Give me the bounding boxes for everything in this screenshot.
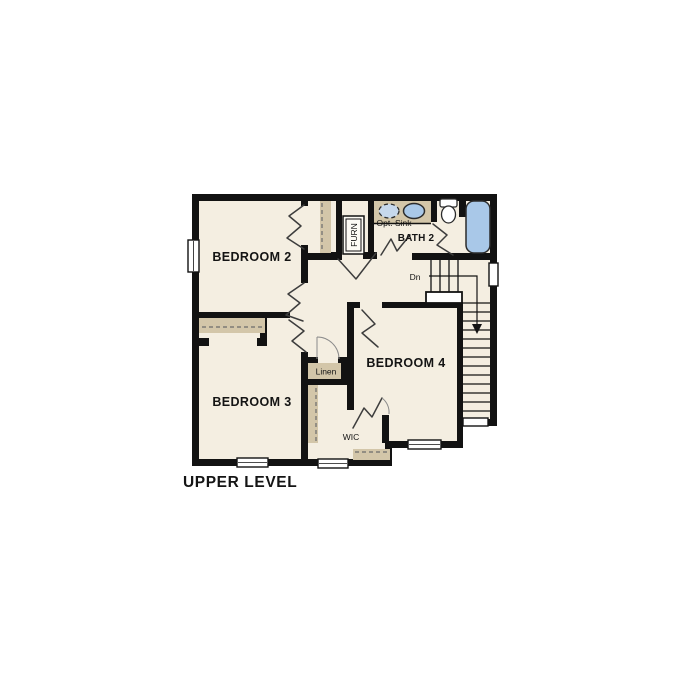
wic-label: WIC (343, 432, 360, 442)
wall-exterior-bottom (192, 459, 392, 466)
bathtub (466, 201, 490, 253)
stairs-down-label: Dn (410, 272, 421, 282)
window-stair-right (489, 263, 498, 286)
wall-bedroom4-left (347, 302, 354, 410)
wall-wic-bedroom4-stub (382, 415, 389, 443)
wall-exterior-left (192, 194, 199, 466)
wall-bath-bottom (412, 253, 497, 260)
wall-bedroom4-right (457, 302, 463, 448)
wall-closet2-bottom (301, 253, 342, 260)
wall-furn-right (368, 194, 374, 253)
wall-closet3-jamb-right (257, 338, 267, 346)
bedroom3-label: BEDROOM 3 (212, 395, 291, 409)
bedroom4-label: BEDROOM 4 (366, 356, 445, 370)
window-stair-bottom (463, 418, 488, 426)
plan-title: UPPER LEVEL (183, 474, 297, 491)
wall-linen-wic-divider (301, 379, 347, 385)
wall-linen-jamb-left (301, 357, 318, 363)
floor-plan-page: BEDROOM 2 BEDROOM 3 BEDROOM 4 BATH 2 Opt… (0, 0, 687, 687)
sink-optional (379, 204, 399, 218)
wall-closet2-furn-divider (336, 194, 342, 260)
wall-bedroom3-right (301, 352, 308, 466)
wall-bedroom2-bottom (192, 312, 290, 318)
floor-plan-drawing: BEDROOM 2 BEDROOM 3 BEDROOM 4 BATH 2 Opt… (0, 0, 687, 687)
wall-closet3-jamb-left (199, 338, 209, 346)
wall-exterior-right (490, 194, 497, 426)
closet-bedroom3-shelf (199, 318, 265, 333)
toilet-bowl (442, 206, 456, 223)
wall-toilet-tub-divider (459, 194, 466, 217)
opt-sink-label: Opt. Sink (377, 218, 413, 228)
sink (404, 204, 425, 219)
bath2-label: BATH 2 (398, 233, 435, 244)
bedroom2-label: BEDROOM 2 (212, 250, 291, 264)
wic-shelf-left (308, 385, 318, 443)
wall-vanity-toilet-divider (431, 194, 437, 222)
linen-label: Linen (316, 367, 337, 377)
wic-shelf-bottom (353, 449, 390, 460)
furnace-label: FURN (349, 223, 359, 247)
stair-railing (426, 292, 462, 303)
wall-bedroom2-right-mid (301, 245, 308, 283)
